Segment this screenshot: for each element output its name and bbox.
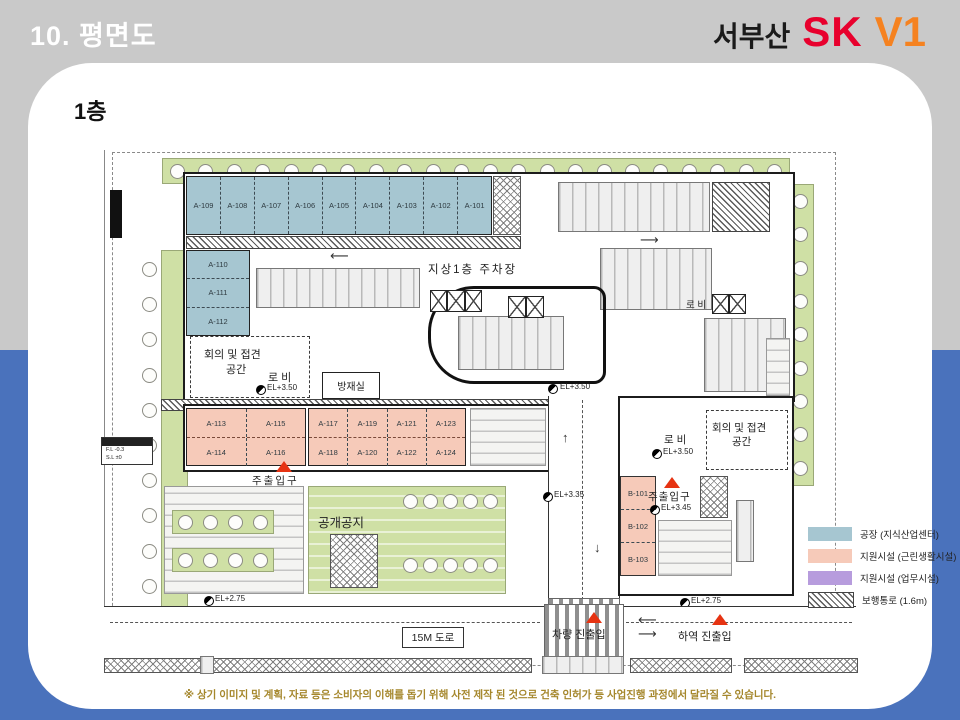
el-marker-345 [650,505,660,515]
plaza-trees-1 [400,492,500,510]
retail-block-b: A-117A-119A-121A-123 A-118A-120A-122A-12… [308,408,466,466]
tree-icon [793,427,808,442]
stair-core-top [493,176,521,235]
sidewalk-1 [104,658,202,673]
unit-a-110: A-110 [187,251,249,279]
drive-arrow-1: ⟵ [330,248,349,264]
stair-core-right [700,476,728,518]
tree-icon [253,515,268,530]
level-table-sl: S.L ±0 [106,455,122,461]
unit-a-114: A-114 [187,438,247,466]
parking-stalls-2 [558,182,710,232]
level-table: F.L -0.3 S.L ±0 [101,437,153,465]
unit-a-102: A-102 [424,177,458,234]
tree-icon [228,553,243,568]
disaster-room-label: 방재실 [337,378,365,393]
unit-a-108: A-108 [221,177,255,234]
el-center: EL+3.50 [560,382,590,391]
legend-swatch-office [808,571,852,585]
tree-icon [203,553,218,568]
unit-a-112: A-112 [187,308,249,335]
legend-label: 공장 (지식산업센터) [860,527,939,541]
el-275-right: EL+2.75 [691,596,721,605]
legend-swatch-hatch [808,592,854,608]
unit-a-104: A-104 [356,177,390,234]
sidewalk-ramp-2 [542,656,624,674]
legend-label: 지원시설 (근린생활시설) [860,549,956,563]
disaster-room-box: 방재실 [322,372,380,399]
sidewalk-2 [212,658,532,673]
tree-icon [443,558,458,573]
legend-swatch-factory [808,527,852,541]
unit-a-122: A-122 [388,438,427,466]
unit-b-103: B-103 [621,543,655,575]
el-marker-335 [543,492,553,502]
tree-icon [423,494,438,509]
tree-icon [178,553,193,568]
meeting-right-line1: 회의 및 접견 [712,420,766,435]
vehicle-access-marker [586,612,602,623]
legend-item: 지원시설 (근린생활시설) [808,549,958,563]
right-entry-steps [658,520,732,576]
front-road-laneline-2 [626,622,852,623]
road-arrow-right: ⟶ [638,626,657,642]
loading-access-marker [712,614,728,625]
legend-item: 지원시설 (업무시설) [808,571,958,585]
left-edge-label [110,190,122,238]
road-15m-label: 15M 도로 [412,630,455,645]
tree-icon [403,494,418,509]
loading-access-label: 하역 진출입 [678,628,732,644]
parking-label: 지상1층 주차장 [428,261,517,277]
core-cluster-lobby-mid [712,294,746,314]
meeting-left-line2: 공간 [226,361,246,377]
tree-icon [253,553,268,568]
plaza-trees-2 [400,556,500,574]
plaza-west-green2 [172,548,274,572]
legend-item: 보행통로 (1.6m) [808,593,958,607]
left-road-edge [104,150,105,670]
front-road [104,606,856,659]
tree-icon [463,558,478,573]
factory-units-left-col: A-110A-111A-112 [186,250,250,336]
legend-item: 공장 (지식산업센터) [808,527,958,541]
unit-a-119: A-119 [348,409,387,437]
tree-row-left [140,252,158,604]
unit-a-105: A-105 [323,177,357,234]
el-345: EL+3.45 [661,503,691,512]
unit-a-101: A-101 [458,177,491,234]
sidewalk-4 [744,658,858,673]
tree-icon [793,461,808,476]
unit-a-115: A-115 [247,409,306,437]
unit-a-111: A-111 [187,279,249,307]
front-road-laneline-1 [110,622,540,623]
unit-a-123: A-123 [427,409,465,437]
disclaimer-text: ※ 상기 이미지 및 계획, 자료 등은 소비자의 이해를 돕기 위해 사전 제… [0,687,960,702]
tree-icon [423,558,438,573]
unit-a-113: A-113 [187,409,247,437]
tree-icon [142,403,157,418]
tree-icon [142,262,157,277]
lobby-mid-label: 로 비 [686,297,706,311]
sidewalk-3 [630,658,732,673]
tree-icon [203,515,218,530]
unit-a-109: A-109 [187,177,221,234]
tree-icon [463,494,478,509]
unit-a-120: A-120 [348,438,387,466]
tree-icon [142,544,157,559]
tree-icon [142,297,157,312]
road-15m-box: 15M 도로 [402,627,464,648]
walkway-top [186,236,521,249]
parking-stalls-1 [256,268,420,308]
unit-a-124: A-124 [427,438,465,466]
retail-block-a: A-113A-115 A-114A-116 [186,408,306,466]
public-open-space-label: 공개공지 [318,512,364,531]
service-road-centerline [582,400,583,600]
el-335: EL+3.35 [554,490,584,499]
stair-band-right [766,338,790,396]
legend-label: 보행통로 (1.6m) [862,593,927,607]
unit-a-118: A-118 [309,438,348,466]
tree-icon [483,494,498,509]
road-arrow-down: ↓ [594,540,601,555]
el-left-lobby: EL+3.50 [267,383,297,392]
el-right-lobby: EL+3.50 [663,447,693,456]
meeting-left-line1: 회의 및 접견 [204,346,261,362]
tree-icon [142,579,157,594]
plaza-west-green [172,510,274,534]
factory-units-top-row: A-109A-108A-107A-106A-105A-104A-103A-102… [186,176,492,235]
unit-a-121: A-121 [388,409,427,437]
parking-stalls-3 [712,182,770,232]
tree-icon [142,473,157,488]
tree-icon [443,494,458,509]
tree-icon [142,508,157,523]
unit-a-107: A-107 [255,177,289,234]
tree-icon [142,332,157,347]
drive-arrow-2: ⟶ [640,232,659,248]
el-275-left: EL+2.75 [215,594,245,603]
el-marker-right-lobby [652,449,662,459]
ramp-island [458,316,564,370]
stair-mid-building [470,408,546,466]
sidewalk-ramp-1 [200,656,214,674]
meeting-right-line2: 공간 [732,434,751,449]
unit-a-103: A-103 [390,177,424,234]
loading-dock [736,500,754,562]
el-marker-left-lobby [256,385,266,395]
legend: 공장 (지식산업센터)지원시설 (근린생활시설)지원시설 (업무시설)보행통로 … [808,527,958,615]
level-table-fl: F.L -0.3 [106,447,124,453]
el-marker-center [548,384,558,394]
tree-icon [178,515,193,530]
unit-b-102: B-102 [621,510,655,543]
legend-swatch-retail [808,549,852,563]
main-entrance-right: 주출입구 [648,489,691,504]
core-cluster-2 [508,296,544,318]
plaza-west [164,486,304,594]
core-cluster-1 [430,290,482,312]
plaza-pavilion [330,534,378,588]
el-marker-275-left [204,596,214,606]
vehicle-access-label: 차량 진출입 [552,626,606,642]
tree-icon [228,515,243,530]
entrance-marker-left [276,461,292,472]
road-arrow-up: ↑ [562,430,569,445]
lobby-right-label: 로 비 [664,432,686,447]
entrance-marker-right [664,477,680,488]
unit-a-117: A-117 [309,409,348,437]
legend-label: 지원시설 (업무시설) [860,571,939,585]
tree-icon [403,558,418,573]
tree-icon [483,558,498,573]
tree-icon [142,368,157,383]
unit-a-106: A-106 [289,177,323,234]
